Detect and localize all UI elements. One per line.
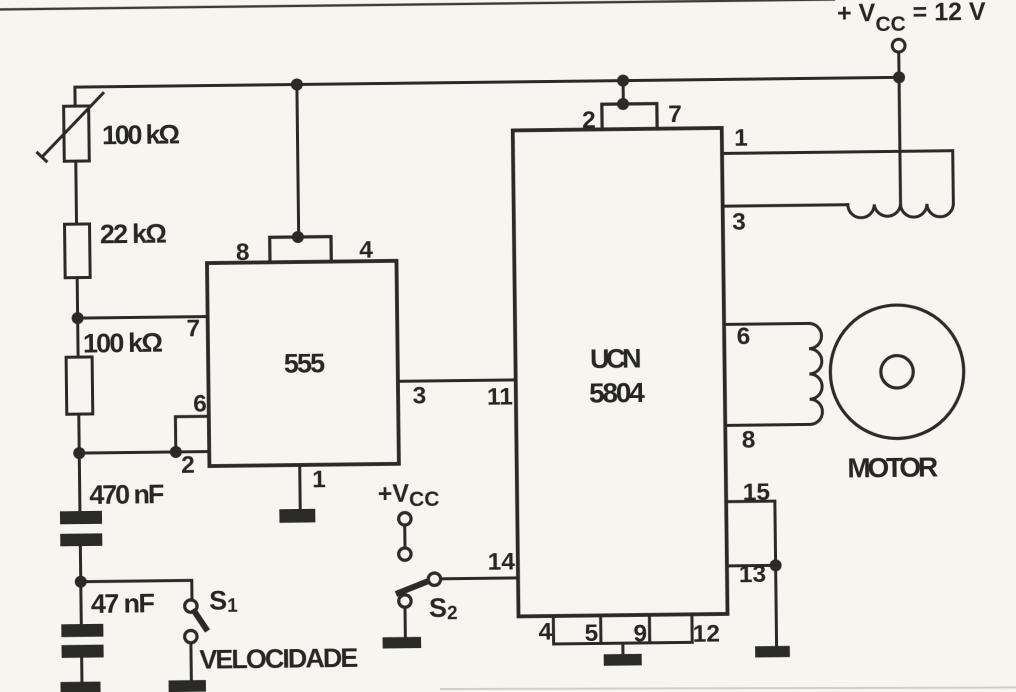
svg-text:2: 2 xyxy=(181,452,195,479)
svg-text:4: 4 xyxy=(538,618,552,645)
svg-text:555: 555 xyxy=(284,348,326,378)
svg-text:22 kΩ: 22 kΩ xyxy=(100,219,167,250)
svg-text:1: 1 xyxy=(734,125,748,152)
svg-text:3: 3 xyxy=(732,209,746,236)
svg-text:4: 4 xyxy=(359,237,373,264)
svg-text:UCN: UCN xyxy=(590,343,642,374)
svg-text:12: 12 xyxy=(693,621,721,648)
svg-text:2: 2 xyxy=(582,107,596,134)
svg-text:1: 1 xyxy=(312,466,326,493)
svg-text:7: 7 xyxy=(186,315,200,342)
svg-text:3: 3 xyxy=(412,383,426,410)
svg-text:5804: 5804 xyxy=(589,377,645,409)
svg-text:470 nF: 470 nF xyxy=(89,479,164,510)
svg-text:9: 9 xyxy=(633,621,647,648)
svg-text:8: 8 xyxy=(742,427,756,454)
svg-text:15: 15 xyxy=(743,479,771,506)
svg-text:8: 8 xyxy=(236,239,250,266)
svg-text:100 kΩ: 100 kΩ xyxy=(83,328,163,359)
svg-text:100 kΩ: 100 kΩ xyxy=(102,119,180,150)
svg-text:14: 14 xyxy=(488,548,516,575)
svg-text:7: 7 xyxy=(668,101,682,128)
svg-text:VELOCIDADE: VELOCIDADE xyxy=(199,643,358,675)
svg-text:47 nF: 47 nF xyxy=(91,588,155,619)
svg-text:13: 13 xyxy=(739,561,767,588)
svg-text:6: 6 xyxy=(193,391,207,418)
svg-text:MOTOR: MOTOR xyxy=(847,452,938,484)
svg-text:11: 11 xyxy=(487,383,513,410)
svg-text:5: 5 xyxy=(584,620,598,647)
svg-text:6: 6 xyxy=(737,323,751,350)
